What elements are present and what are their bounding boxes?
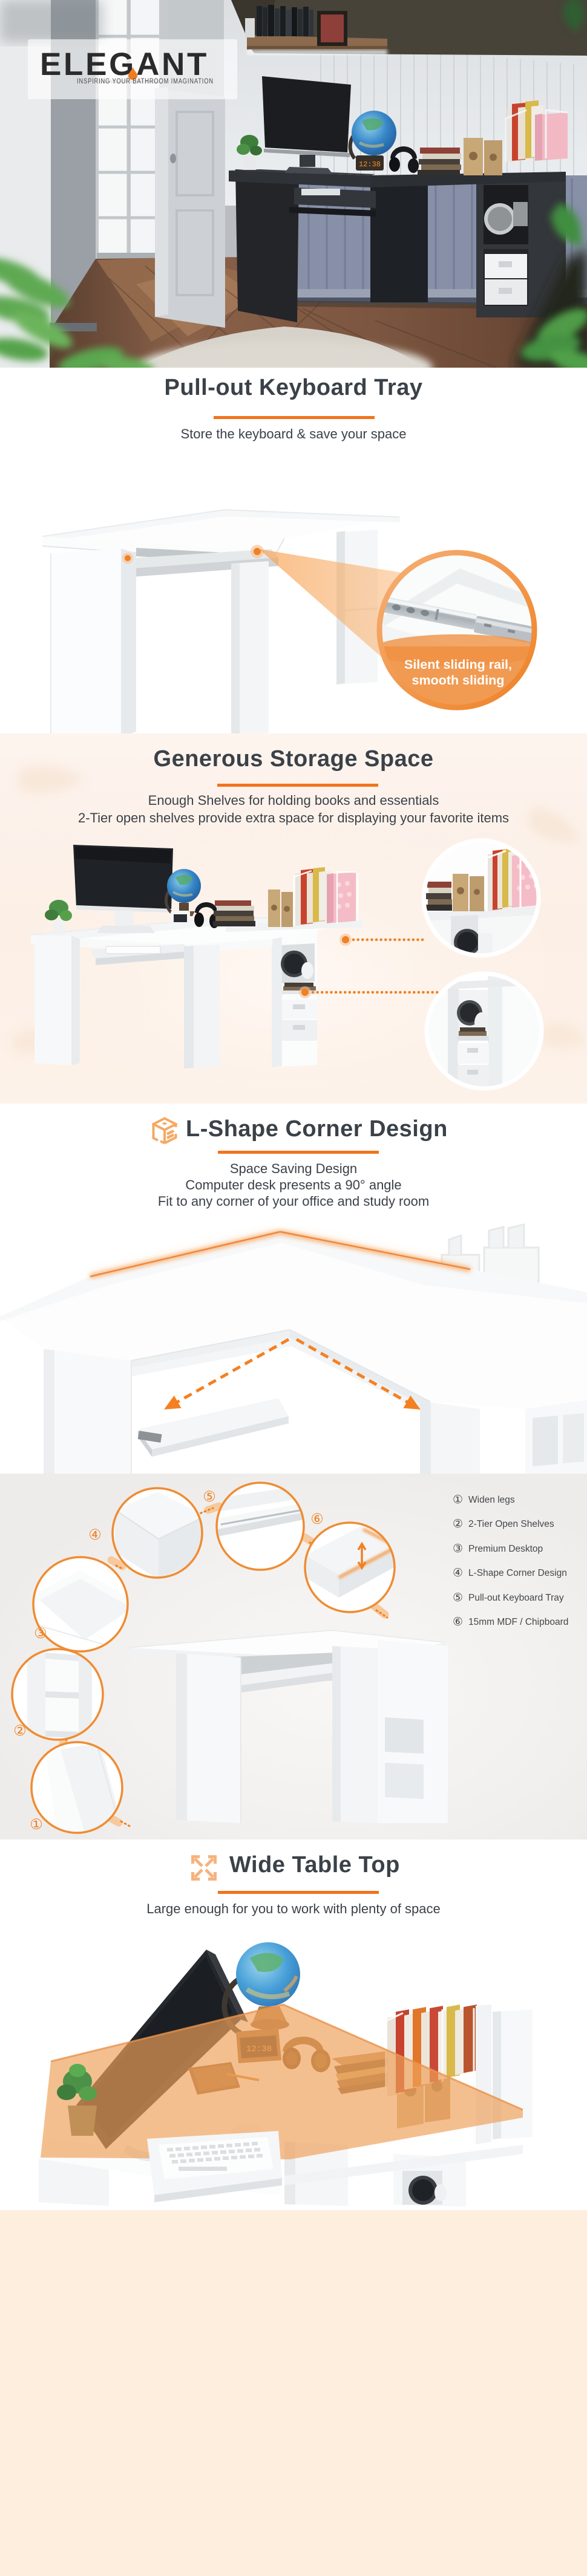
svg-text:③: ③ [34, 1625, 47, 1642]
svg-text:⑤: ⑤ [453, 1592, 463, 1604]
svg-text:⑥: ⑥ [453, 1616, 463, 1628]
svg-text:④: ④ [88, 1527, 102, 1543]
svg-text:⑥: ⑥ [310, 1511, 324, 1527]
svg-text:2-Tier Open Shelves: 2-Tier Open Shelves [468, 1519, 554, 1529]
svg-text:①: ① [30, 1817, 43, 1833]
svg-text:Premium Desktop: Premium Desktop [468, 1544, 543, 1554]
svg-text:②: ② [453, 1518, 463, 1530]
svg-text:⑤: ⑤ [203, 1489, 216, 1505]
svg-text:③: ③ [453, 1543, 463, 1555]
svg-text:④: ④ [453, 1567, 463, 1579]
svg-text:smooth sliding: smooth sliding [412, 673, 505, 688]
svg-text:12:38: 12:38 [359, 160, 381, 169]
svg-text:②: ② [13, 1723, 27, 1739]
svg-text:Silent sliding rail,: Silent sliding rail, [404, 657, 512, 672]
svg-text:L-Shape Corner Design: L-Shape Corner Design [468, 1568, 567, 1578]
svg-text:①: ① [453, 1494, 463, 1506]
svg-text:Pull-out Keyboard Tray: Pull-out Keyboard Tray [468, 1593, 564, 1603]
svg-text:Widen legs: Widen legs [468, 1495, 515, 1505]
svg-text:15mm MDF / Chipboard: 15mm MDF / Chipboard [468, 1617, 568, 1627]
